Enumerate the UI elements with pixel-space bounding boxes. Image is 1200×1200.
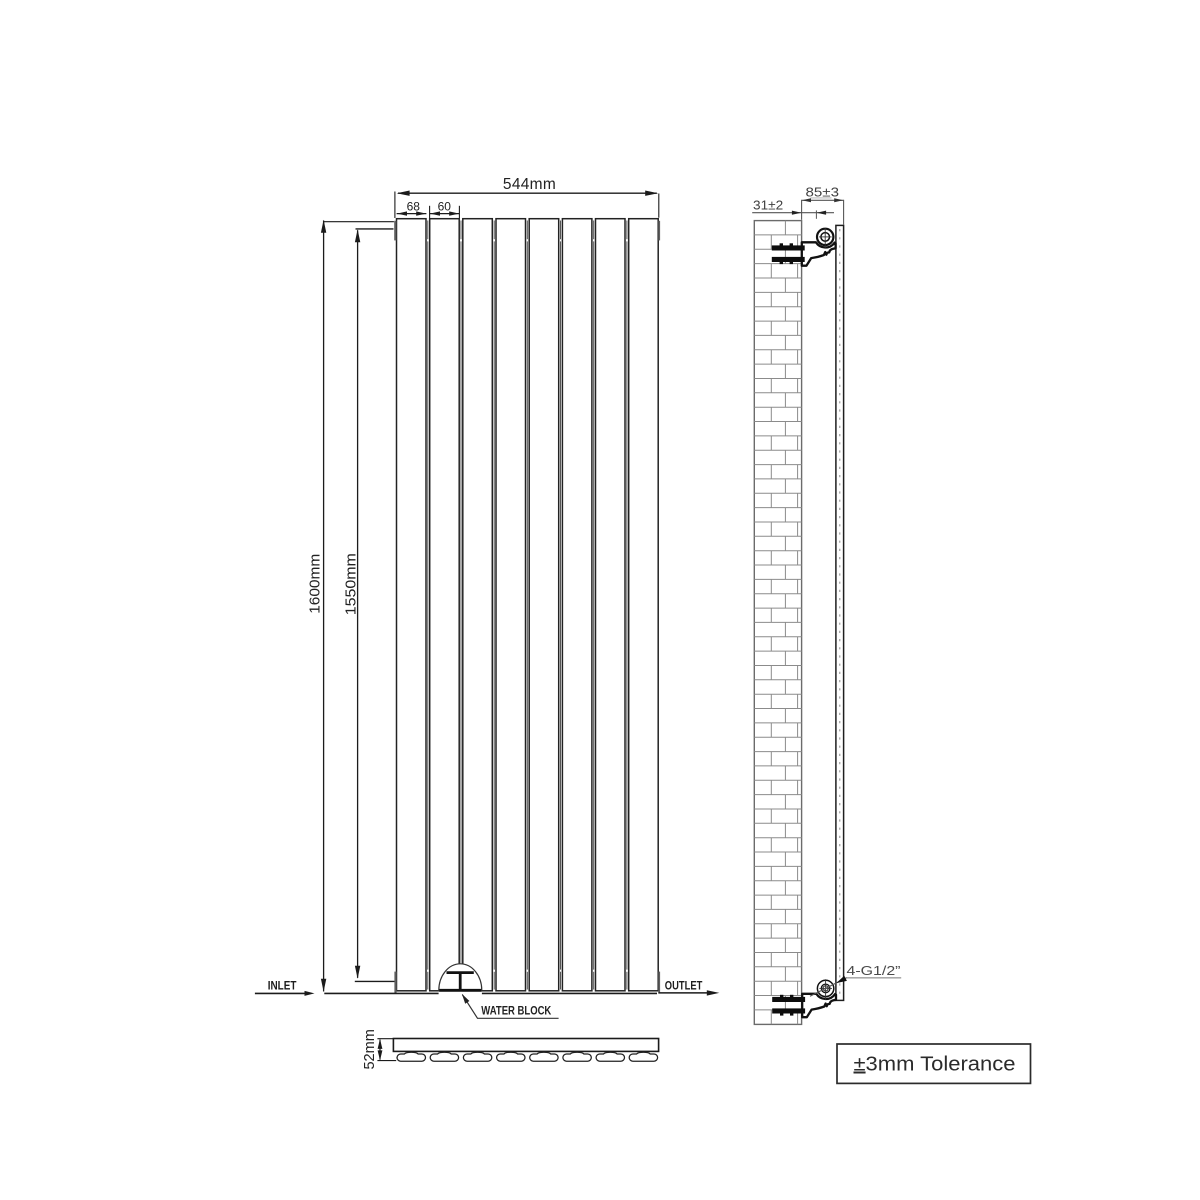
svg-text:±3mm Tolerance: ±3mm Tolerance (854, 1054, 1016, 1076)
svg-text:85±3: 85±3 (806, 185, 840, 200)
svg-text:60: 60 (438, 199, 452, 213)
svg-text:OUTLET: OUTLET (665, 978, 703, 992)
svg-text:544mm: 544mm (503, 176, 556, 193)
svg-text:WATER BLOCK: WATER BLOCK (481, 1003, 551, 1017)
svg-text:68: 68 (407, 199, 421, 213)
svg-text:INLET: INLET (268, 978, 297, 992)
svg-text:52mm: 52mm (362, 1029, 378, 1070)
svg-text:4-G1/2”: 4-G1/2” (847, 964, 901, 978)
svg-text:1600mm: 1600mm (307, 554, 324, 614)
svg-text:31±2: 31±2 (753, 198, 783, 213)
svg-text:1550mm: 1550mm (342, 553, 359, 615)
